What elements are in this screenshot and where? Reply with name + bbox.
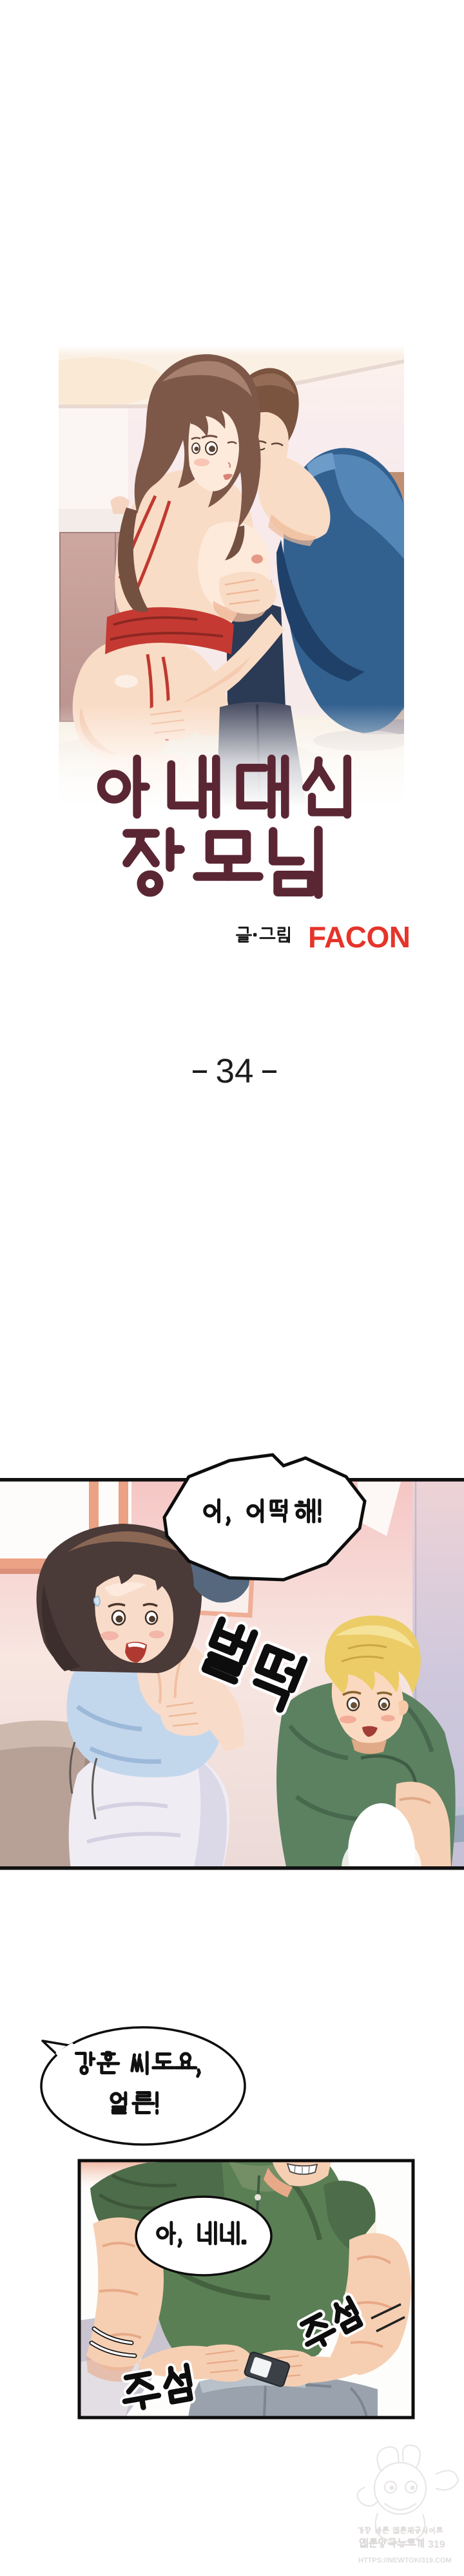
- svg-text:319: 319: [428, 2539, 445, 2550]
- svg-text:HTTPS://NEWTOKI319.COM: HTTPS://NEWTOKI319.COM: [358, 2557, 452, 2564]
